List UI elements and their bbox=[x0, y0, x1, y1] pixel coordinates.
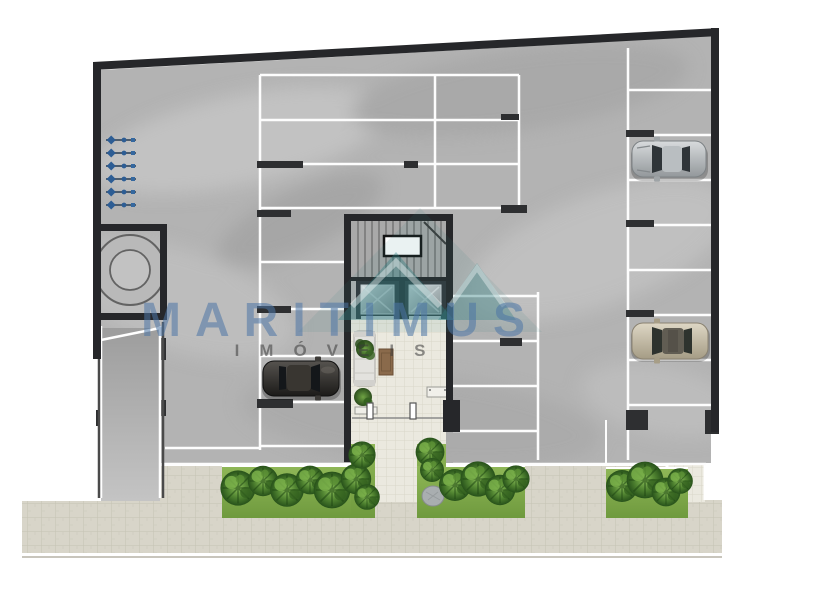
floor-plan: MARITIMUS IMÓVEIS bbox=[0, 0, 826, 600]
car-dark bbox=[262, 357, 341, 401]
watermark-title: MARITIMUS bbox=[141, 294, 539, 347]
wall-right bbox=[711, 28, 719, 432]
car-silver bbox=[631, 137, 708, 182]
entrance-door-right bbox=[410, 403, 416, 419]
ramp-surface bbox=[101, 328, 160, 501]
watermark-subtitle: IMÓVEIS bbox=[235, 341, 446, 360]
porch-bench bbox=[355, 407, 377, 414]
entry-path bbox=[375, 444, 417, 502]
sidewalk-bottom-white bbox=[22, 553, 722, 557]
car-champagne bbox=[631, 319, 710, 364]
tank-room-wall-top bbox=[95, 224, 167, 231]
floor-plan-canvas: MARITIMUS IMÓVEIS bbox=[0, 0, 826, 600]
water-tank-inner bbox=[110, 250, 150, 290]
entrance-door-left bbox=[367, 403, 373, 419]
vehicle-ramp bbox=[99, 322, 163, 501]
lobby-console bbox=[427, 387, 448, 397]
driveway-apron-left bbox=[160, 466, 222, 502]
